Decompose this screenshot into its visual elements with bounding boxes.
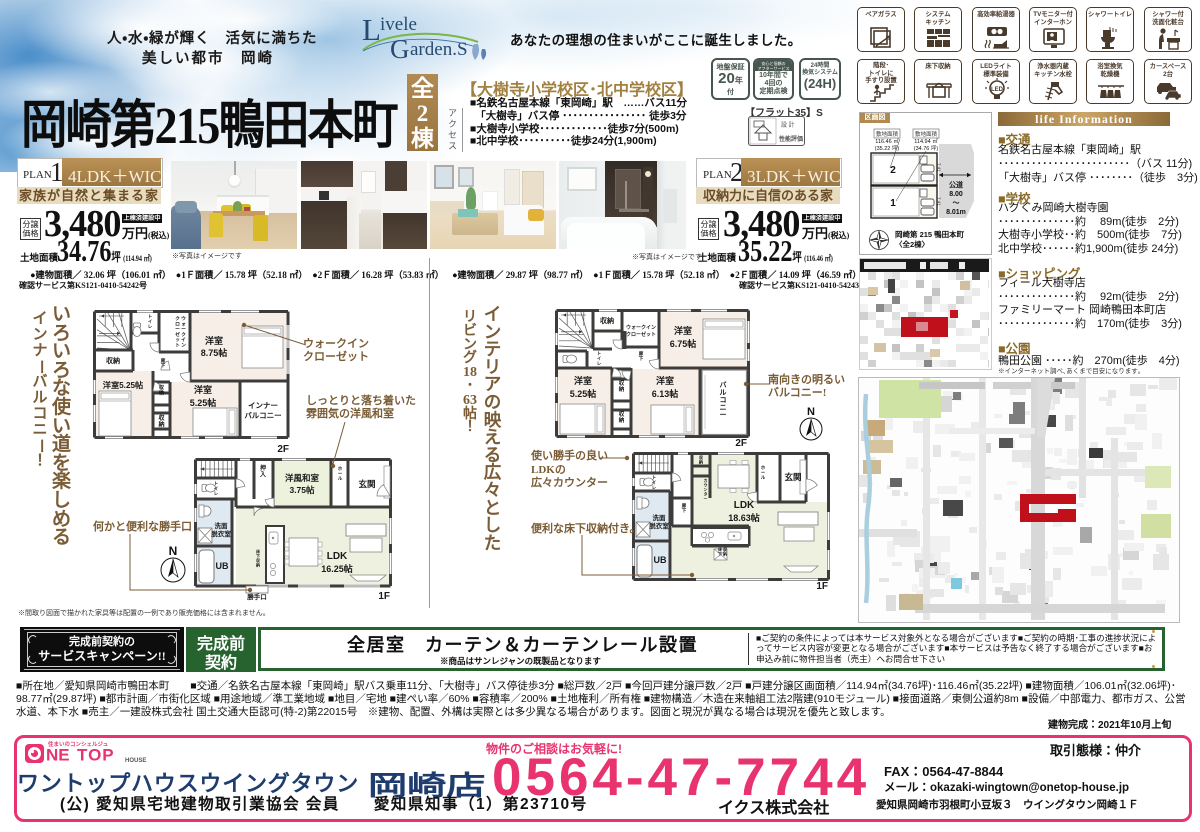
svg-text:納: 納 bbox=[157, 421, 164, 429]
svg-text:〈全2棟〉: 〈全2棟〉 bbox=[895, 239, 929, 249]
svg-text:下: 下 bbox=[639, 355, 644, 362]
svg-text:3.75帖: 3.75帖 bbox=[289, 485, 315, 495]
svg-text:下: 下 bbox=[161, 362, 166, 369]
svg-text:ト: ト bbox=[175, 343, 180, 349]
svg-text:洋室: 洋室 bbox=[194, 384, 212, 395]
svg-text:8.75帖: 8.75帖 bbox=[201, 347, 228, 358]
svg-text:TOP: TOP bbox=[77, 746, 115, 765]
svg-text:2F: 2F bbox=[277, 444, 289, 455]
svg-text:レ: レ bbox=[652, 485, 657, 490]
svg-text:レ: レ bbox=[214, 491, 219, 496]
svg-text:18.63帖: 18.63帖 bbox=[728, 512, 760, 523]
svg-text:岡崎第 215 鴨田本町: 岡崎第 215 鴨田本町 bbox=[895, 229, 965, 239]
svg-text:ォ: ォ bbox=[181, 322, 186, 327]
svg-text:N: N bbox=[807, 406, 815, 418]
svg-text:ク: ク bbox=[175, 315, 180, 322]
svg-text:ッ: ッ bbox=[175, 338, 180, 343]
svg-text:2F: 2F bbox=[735, 438, 747, 449]
svg-text:納: 納 bbox=[158, 390, 164, 397]
svg-text:〜: 〜 bbox=[953, 200, 960, 207]
svg-text:LDK: LDK bbox=[327, 551, 348, 562]
svg-text:ー: ー bbox=[175, 328, 180, 333]
svg-text:116.46 ㎡: 116.46 ㎡ bbox=[875, 137, 899, 145]
svg-text:洗面: 洗面 bbox=[215, 521, 229, 530]
svg-text:コ: コ bbox=[720, 396, 727, 404]
svg-text:ー: ー bbox=[720, 412, 727, 419]
svg-text:納: 納 bbox=[618, 416, 625, 424]
svg-text:5.25帖: 5.25帖 bbox=[570, 388, 597, 399]
svg-text:ニ: ニ bbox=[720, 405, 727, 412]
svg-text:インナー: インナー bbox=[248, 401, 278, 410]
svg-text:洋室5.25帖: 洋室5.25帖 bbox=[103, 380, 144, 390]
svg-text:ル: ル bbox=[761, 475, 766, 480]
svg-text:5.25帖: 5.25帖 bbox=[190, 397, 217, 408]
svg-text:6.13帖: 6.13帖 bbox=[652, 388, 679, 399]
svg-text:ル: ル bbox=[720, 389, 727, 397]
svg-text:7.41: 7.41 bbox=[937, 163, 942, 172]
svg-text:納: 納 bbox=[618, 385, 625, 393]
svg-text:収: 収 bbox=[619, 410, 625, 418]
svg-text:洋風和室: 洋風和室 bbox=[285, 473, 320, 483]
svg-text:設 計: 設 計 bbox=[781, 121, 795, 129]
svg-text:ク: ク bbox=[181, 331, 186, 338]
svg-text:下: 下 bbox=[682, 507, 687, 514]
svg-text:ン: ン bbox=[181, 343, 186, 349]
svg-text:2: 2 bbox=[890, 165, 896, 176]
svg-text:イ: イ bbox=[181, 337, 186, 343]
svg-text:玄関: 玄関 bbox=[358, 479, 375, 489]
svg-text:クローゼット: クローゼット bbox=[626, 331, 656, 338]
svg-text:G: G bbox=[390, 34, 410, 64]
svg-text:ー: ー bbox=[704, 496, 708, 501]
svg-text:納: 納 bbox=[698, 459, 703, 466]
svg-text:N: N bbox=[169, 544, 178, 558]
svg-text:バルコニー: バルコニー bbox=[244, 411, 281, 420]
svg-text:LDK: LDK bbox=[734, 500, 755, 511]
svg-text:ー: ー bbox=[181, 328, 186, 333]
svg-text:ロ: ロ bbox=[175, 321, 180, 327]
svg-text:LED: LED bbox=[991, 87, 1004, 93]
svg-text:ウ: ウ bbox=[181, 315, 186, 322]
svg-text:16.25帖: 16.25帖 bbox=[321, 563, 353, 574]
svg-text:性能評価: 性能評価 bbox=[778, 135, 803, 143]
svg-text:arden.S: arden.S bbox=[410, 39, 468, 60]
svg-text:ゼ: ゼ bbox=[175, 331, 180, 338]
svg-text:ivele: ivele bbox=[380, 14, 417, 35]
svg-text:収納: 収納 bbox=[600, 316, 614, 325]
svg-text:収: 収 bbox=[158, 414, 165, 422]
svg-text:(34.76 坪): (34.76 坪) bbox=[914, 144, 939, 152]
svg-text:7.41: 7.41 bbox=[937, 197, 942, 206]
svg-text:脱衣室: 脱衣室 bbox=[649, 521, 669, 530]
svg-text:洋室: 洋室 bbox=[574, 375, 592, 386]
svg-text:1F: 1F bbox=[378, 591, 390, 602]
svg-text:8.00: 8.00 bbox=[949, 191, 963, 198]
svg-text:敷地面積: 敷地面積 bbox=[915, 130, 938, 138]
svg-text:NE: NE bbox=[46, 746, 70, 765]
svg-text:公道: 公道 bbox=[949, 180, 963, 189]
svg-text:押: 押 bbox=[260, 464, 266, 472]
svg-text:レ: レ bbox=[148, 324, 153, 329]
svg-text:1F: 1F bbox=[816, 581, 828, 592]
svg-text:HOUSE: HOUSE bbox=[125, 758, 146, 764]
svg-text:洗面: 洗面 bbox=[653, 513, 667, 522]
svg-text:洋室: 洋室 bbox=[205, 335, 223, 346]
svg-text:6.75帖: 6.75帖 bbox=[670, 338, 697, 349]
svg-text:玄関: 玄関 bbox=[784, 472, 801, 482]
svg-text:収納: 収納 bbox=[106, 356, 120, 365]
svg-text:敷地面積: 敷地面積 bbox=[876, 130, 899, 138]
svg-text:ウォークイン: ウォークイン bbox=[626, 324, 656, 331]
svg-text:収: 収 bbox=[619, 379, 625, 387]
svg-text:洋室: 洋室 bbox=[656, 375, 674, 386]
svg-text:入: 入 bbox=[259, 471, 266, 479]
svg-text:114.94 ㎡: 114.94 ㎡ bbox=[914, 137, 938, 145]
svg-text:L: L bbox=[362, 12, 381, 47]
svg-text:8.01m: 8.01m bbox=[946, 209, 966, 216]
svg-text:下: 下 bbox=[718, 551, 722, 557]
svg-text:ル: ル bbox=[338, 476, 343, 481]
svg-text:1: 1 bbox=[890, 198, 896, 209]
svg-text:納: 納 bbox=[722, 551, 727, 557]
svg-text:レ: レ bbox=[597, 361, 602, 366]
svg-text:バ: バ bbox=[720, 381, 727, 389]
svg-text:洋室: 洋室 bbox=[674, 325, 692, 336]
